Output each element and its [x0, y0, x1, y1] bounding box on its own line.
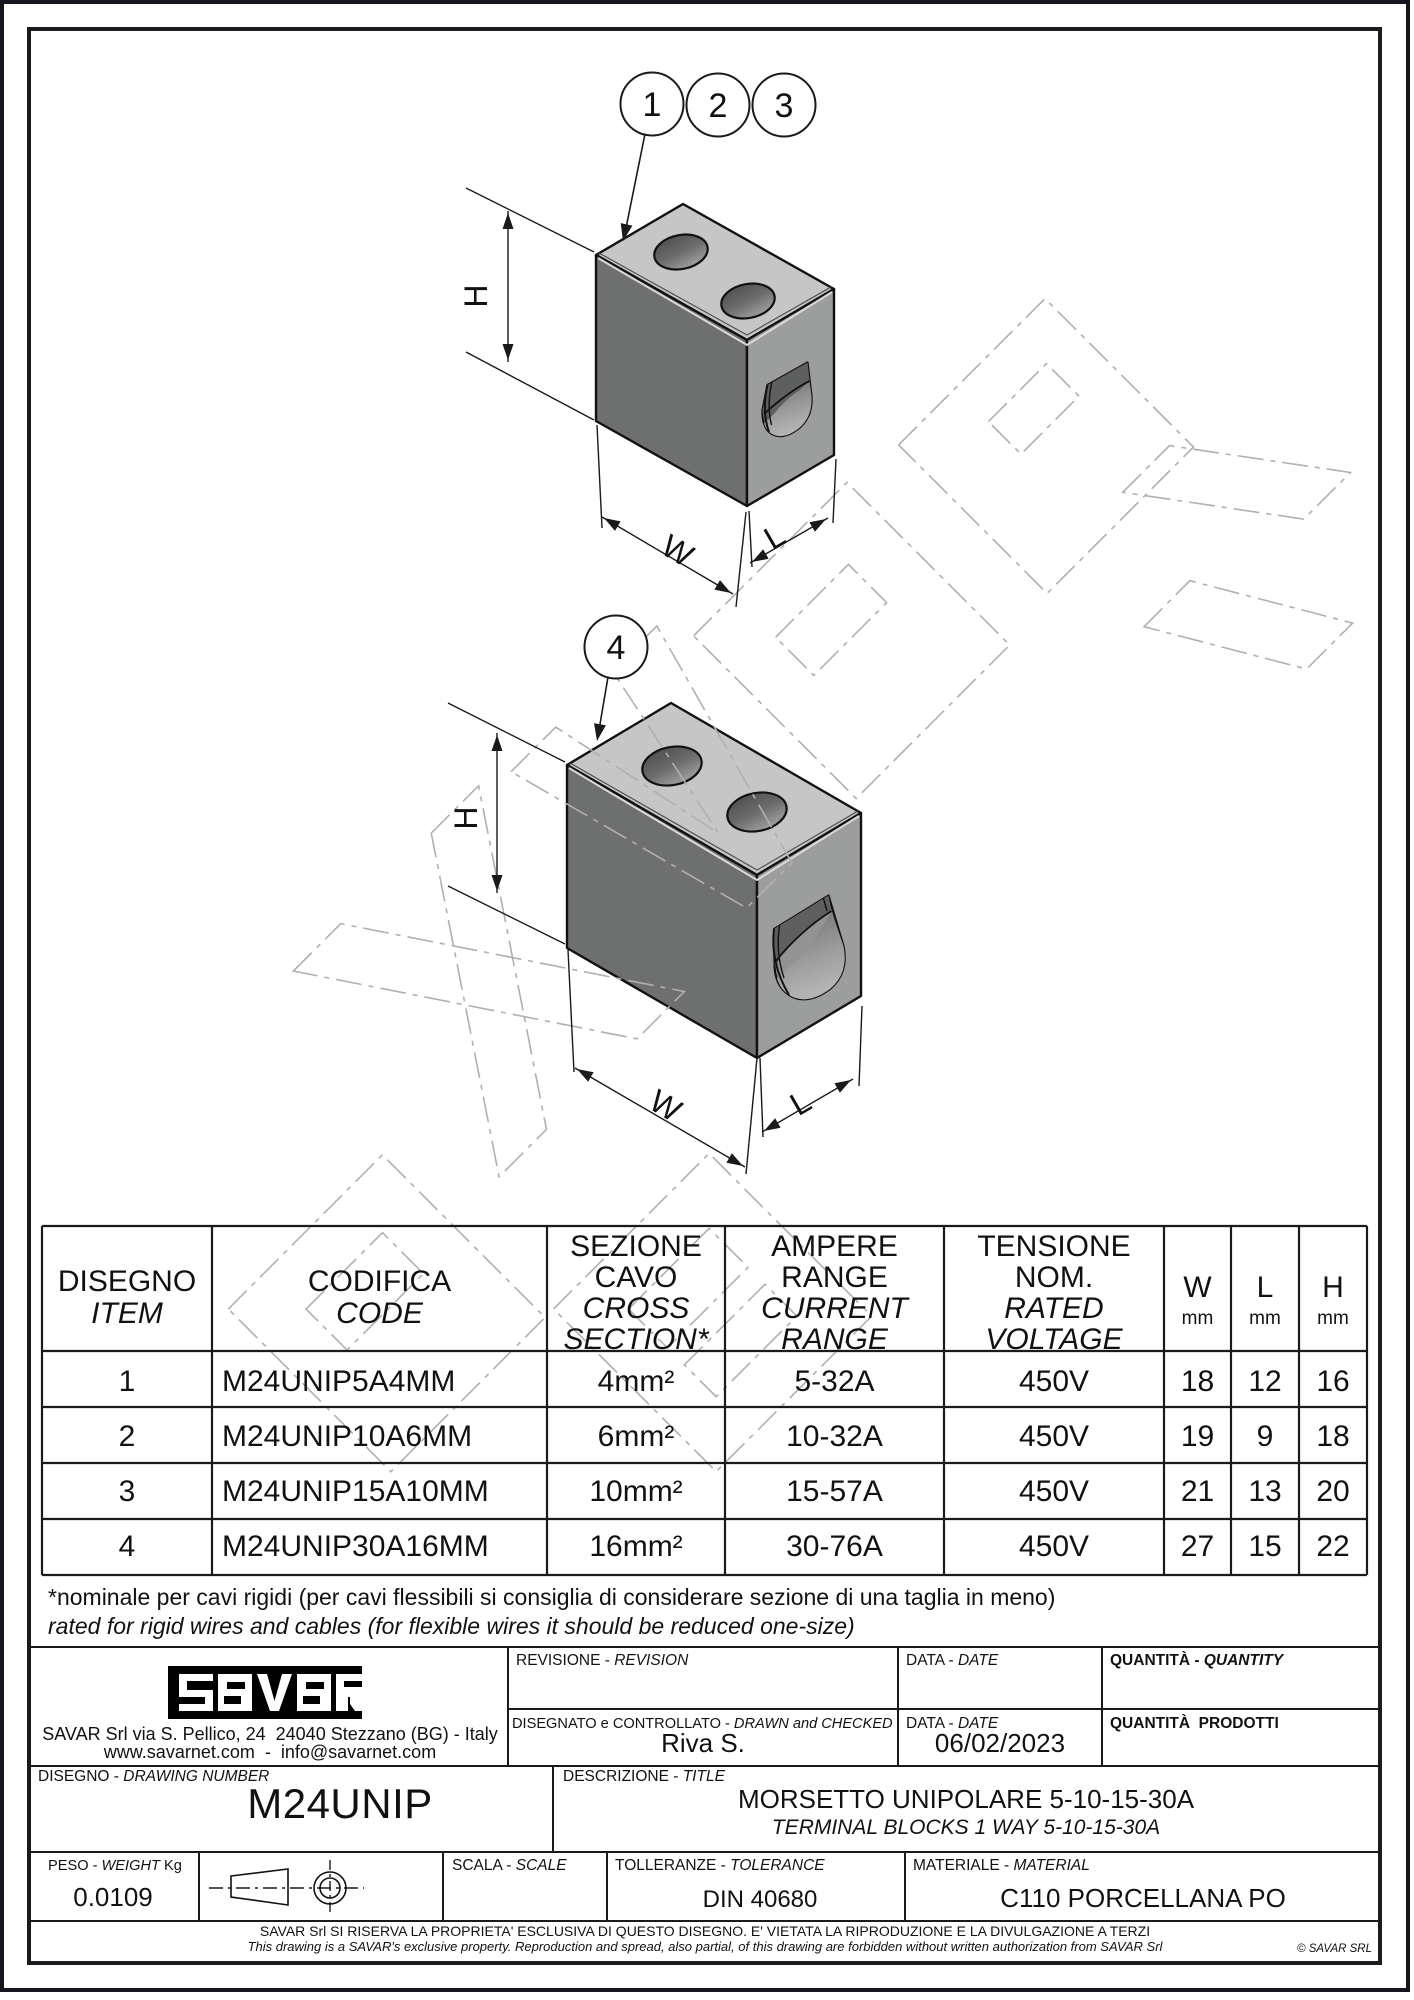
svg-text:RANGE: RANGE: [781, 1261, 888, 1294]
svg-text:9: 9: [1257, 1420, 1274, 1453]
svg-text:QUANTITÀ - QUANTITY: QUANTITÀ - QUANTITY: [1110, 1652, 1285, 1669]
svg-text:1: 1: [119, 1365, 136, 1398]
svg-text:DESCRIZIONE - TITLE: DESCRIZIONE - TITLE: [563, 1768, 726, 1785]
svg-text:RANGE: RANGE: [781, 1323, 889, 1356]
svg-text:SAVAR Srl via S. Pellico, 24: SAVAR Srl via S. Pellico, 24 24040 Stezz…: [42, 1724, 498, 1744]
svg-text:13: 13: [1248, 1475, 1281, 1508]
svg-text:DISEGNO: DISEGNO: [58, 1265, 196, 1298]
svg-text:DATA - DATE: DATA - DATE: [906, 1652, 999, 1669]
svg-text:450V: 450V: [1019, 1530, 1089, 1563]
svg-text:mm: mm: [1249, 1308, 1281, 1329]
svg-text:16: 16: [1316, 1365, 1349, 1398]
svg-text:06/02/2023: 06/02/2023: [935, 1728, 1065, 1758]
svg-text:MATERIALE - MATERIAL: MATERIALE - MATERIAL: [913, 1857, 1090, 1874]
svg-text:*nominale per cavi rigidi (per: *nominale per cavi rigidi (per cavi fles…: [48, 1584, 1055, 1610]
svg-text:10-32A: 10-32A: [786, 1420, 883, 1453]
svg-text:CODE: CODE: [336, 1297, 424, 1330]
svg-text:SAVAR Srl SI RISERVA LA PROPRI: SAVAR Srl SI RISERVA LA PROPRIETA' ESCLU…: [260, 1923, 1150, 1939]
svg-text:NOM.: NOM.: [1015, 1261, 1093, 1294]
svg-text:M24UNIP5A4MM: M24UNIP5A4MM: [222, 1365, 455, 1398]
svg-text:CAVO: CAVO: [595, 1261, 678, 1294]
svg-text:21: 21: [1181, 1475, 1214, 1508]
svg-text:18: 18: [1316, 1420, 1349, 1453]
svg-text:0.0109: 0.0109: [73, 1882, 153, 1912]
svg-text:MORSETTO UNIPOLARE 5-10-15-30A: MORSETTO UNIPOLARE 5-10-15-30A: [738, 1784, 1195, 1814]
svg-text:L: L: [1257, 1271, 1274, 1304]
svg-text:450V: 450V: [1019, 1365, 1089, 1398]
svg-text:450V: 450V: [1019, 1475, 1089, 1508]
svg-text:M24UNIP: M24UNIP: [247, 1780, 433, 1827]
svg-text:SCALA - SCALE: SCALA - SCALE: [452, 1857, 567, 1874]
svg-text:M24UNIP30A16MM: M24UNIP30A16MM: [222, 1530, 489, 1563]
svg-text:22: 22: [1316, 1530, 1349, 1563]
svg-text:6mm²: 6mm²: [598, 1420, 675, 1453]
svg-text:QUANTITÀ PRODOTTI: QUANTITÀ PRODOTTI: [1110, 1715, 1279, 1732]
svg-text:18: 18: [1181, 1365, 1214, 1398]
svg-text:10mm²: 10mm²: [589, 1475, 682, 1508]
svg-text:15: 15: [1248, 1530, 1281, 1563]
svg-text:C110 PORCELLANA PO: C110 PORCELLANA PO: [1000, 1883, 1286, 1913]
svg-text:ITEM: ITEM: [91, 1297, 163, 1330]
svg-text:20: 20: [1316, 1475, 1349, 1508]
svg-text:2: 2: [119, 1420, 136, 1453]
svg-text:4: 4: [119, 1530, 136, 1563]
svg-text:CROSS: CROSS: [583, 1292, 690, 1325]
svg-text:CODIFICA: CODIFICA: [308, 1265, 451, 1298]
svg-text:SEZIONE: SEZIONE: [570, 1230, 702, 1263]
svg-text:AMPERE: AMPERE: [771, 1230, 898, 1263]
svg-text:27: 27: [1181, 1530, 1214, 1563]
svg-text:mm: mm: [1182, 1308, 1214, 1329]
svg-text:www.savarnet.com - info@sava: www.savarnet.com - info@savarnet.com: [103, 1742, 436, 1762]
svg-text:30-76A: 30-76A: [786, 1530, 883, 1563]
svg-text:Riva S.: Riva S.: [661, 1728, 745, 1758]
svg-text:3: 3: [775, 87, 794, 125]
svg-text:SECTION*: SECTION*: [563, 1323, 709, 1356]
svg-text:rated for rigid wires and cabl: rated for rigid wires and cables (for fl…: [48, 1613, 855, 1639]
svg-text:450V: 450V: [1019, 1420, 1089, 1453]
svg-text:DIN 40680: DIN 40680: [703, 1886, 818, 1913]
svg-text:RATED: RATED: [1004, 1292, 1103, 1325]
svg-text:19: 19: [1181, 1420, 1214, 1453]
svg-text:TOLLERANZE - TOLERANCE: TOLLERANZE - TOLERANCE: [615, 1857, 825, 1874]
svg-text:4mm²: 4mm²: [598, 1365, 675, 1398]
svg-text:W: W: [1183, 1271, 1212, 1304]
svg-text:1: 1: [643, 86, 662, 124]
svg-text:12: 12: [1248, 1365, 1281, 1398]
svg-text:H: H: [1322, 1271, 1344, 1304]
svg-text:TENSIONE: TENSIONE: [977, 1230, 1130, 1263]
svg-text:3: 3: [119, 1475, 136, 1508]
svg-text:© SAVAR SRL: © SAVAR SRL: [1297, 1943, 1372, 1955]
svg-text:M24UNIP15A10MM: M24UNIP15A10MM: [222, 1475, 489, 1508]
svg-text:REVISIONE - REVISION: REVISIONE - REVISION: [516, 1652, 689, 1669]
svg-text:M24UNIP10A6MM: M24UNIP10A6MM: [222, 1420, 472, 1453]
svg-text:15-57A: 15-57A: [786, 1475, 883, 1508]
svg-text:VOLTAGE: VOLTAGE: [985, 1323, 1123, 1356]
svg-text:CURRENT: CURRENT: [761, 1292, 910, 1325]
svg-text:H: H: [448, 806, 484, 829]
svg-text:mm: mm: [1317, 1308, 1349, 1329]
svg-text:PESO - WEIGHT Kg: PESO - WEIGHT Kg: [48, 1858, 182, 1874]
svg-text:16mm²: 16mm²: [589, 1530, 682, 1563]
svg-text:TERMINAL BLOCKS 1 WAY 5-10-15-: TERMINAL BLOCKS 1 WAY 5-10-15-30A: [772, 1816, 1160, 1839]
svg-text:This drawing is a SAVAR's excl: This drawing is a SAVAR's exclusive prop…: [248, 1939, 1164, 1954]
svg-text:H: H: [458, 284, 494, 307]
svg-text:4: 4: [607, 629, 626, 667]
svg-text:DISEGNO - DRAWING NUMBER: DISEGNO - DRAWING NUMBER: [38, 1768, 269, 1785]
svg-text:5-32A: 5-32A: [794, 1365, 874, 1398]
svg-text:2: 2: [709, 87, 728, 125]
